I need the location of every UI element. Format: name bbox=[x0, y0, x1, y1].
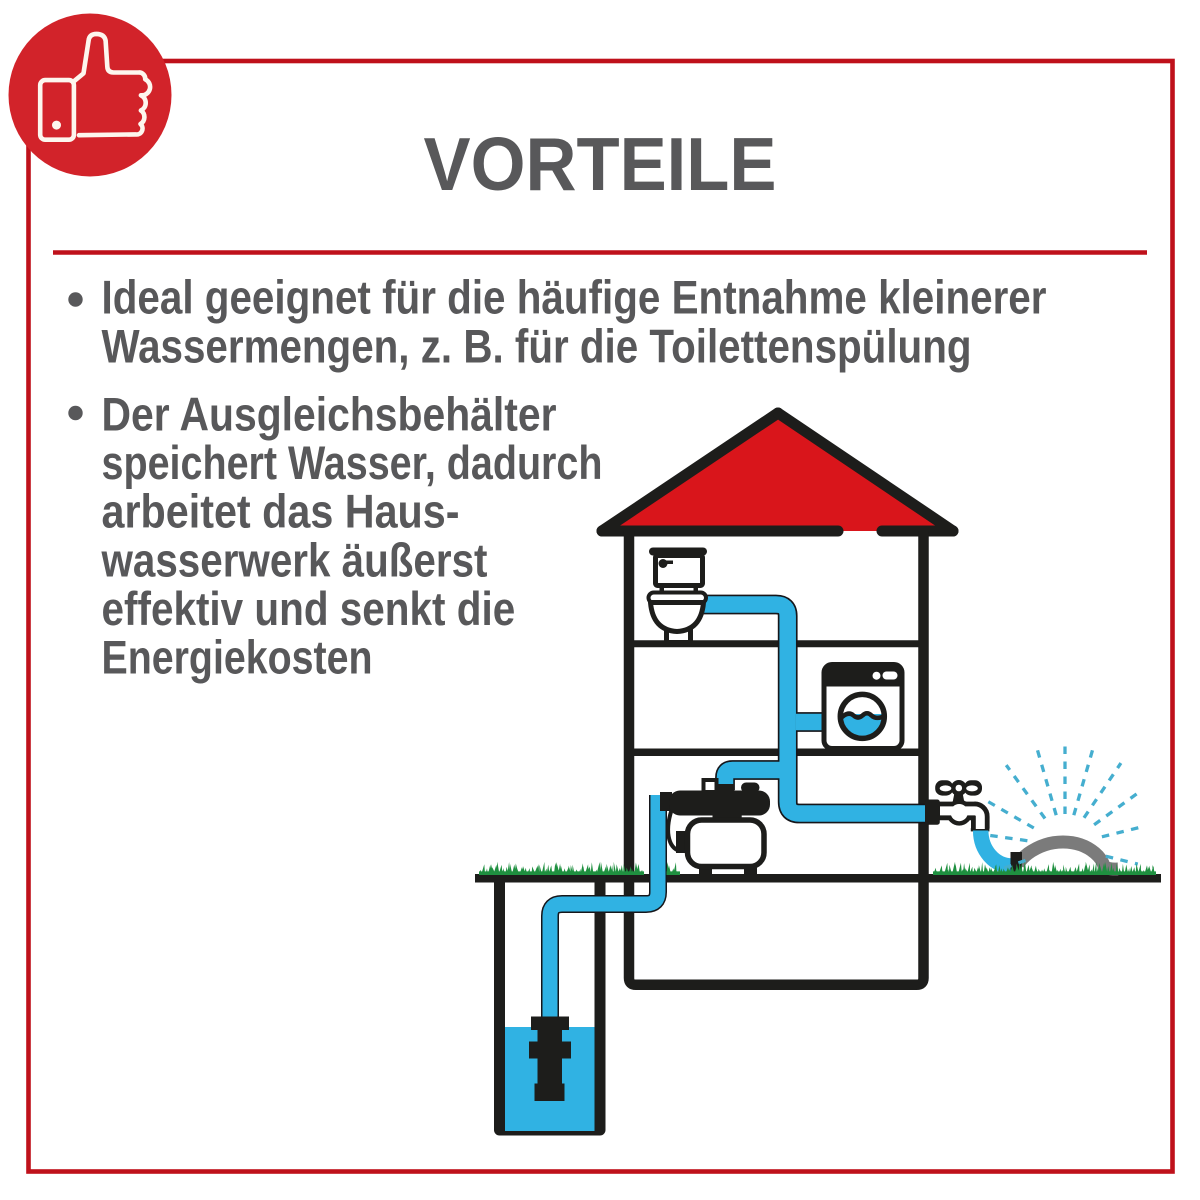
svg-text:wasserwerk äußerst: wasserwerk äußerst bbox=[101, 533, 488, 586]
svg-text:Wassermengen, z. B. für die To: Wassermengen, z. B. für die Toilettenspü… bbox=[102, 320, 972, 373]
svg-text:speichert Wasser, dadurch: speichert Wasser, dadurch bbox=[102, 436, 603, 489]
svg-text:arbeitet das Haus-: arbeitet das Haus- bbox=[102, 485, 460, 538]
svg-text:effektiv und senkt die: effektiv und senkt die bbox=[102, 582, 516, 635]
svg-text:Energiekosten: Energiekosten bbox=[102, 630, 373, 683]
svg-text:VORTEILE: VORTEILE bbox=[424, 122, 777, 206]
svg-text:Der Ausgleichsbehälter: Der Ausgleichsbehälter bbox=[102, 388, 557, 441]
svg-text:Ideal geeignet für die häufige: Ideal geeignet für die häufige Entnahme … bbox=[102, 271, 1047, 324]
